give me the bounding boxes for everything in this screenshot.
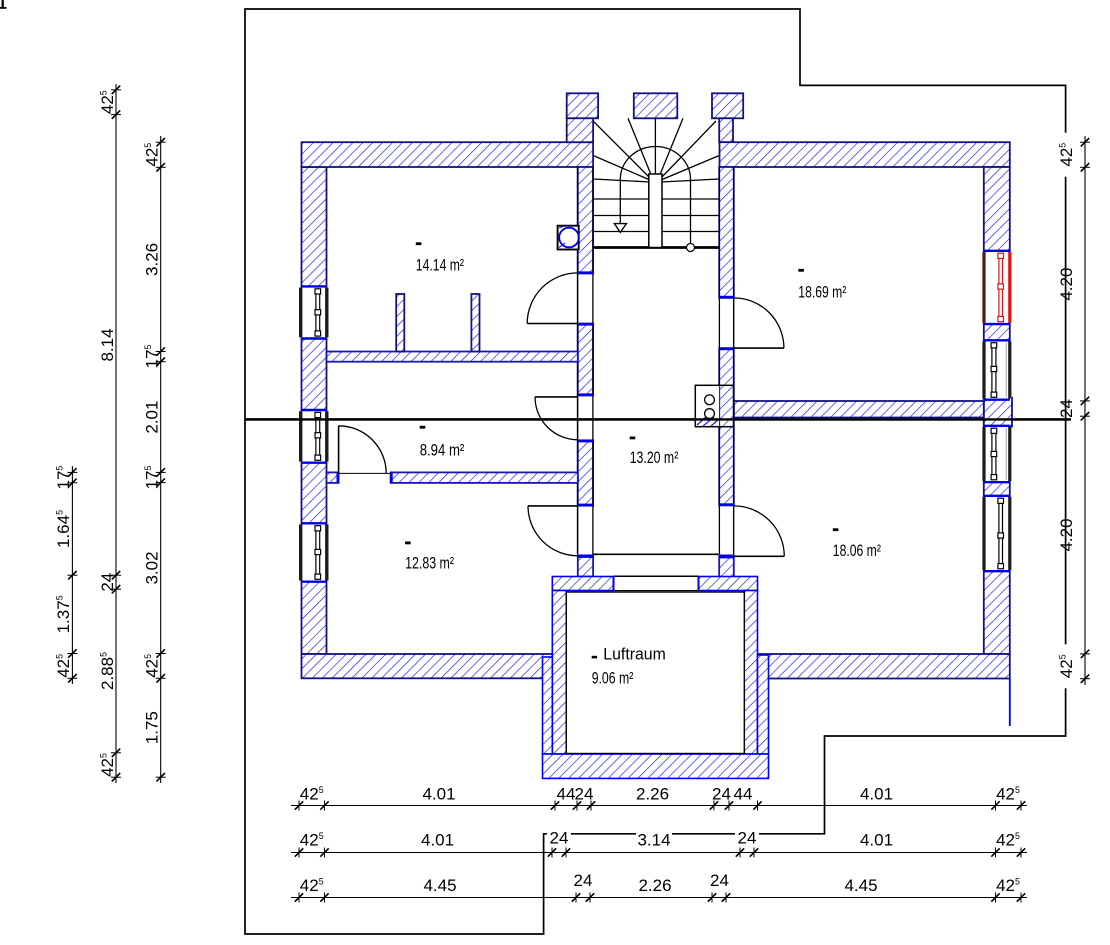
svg-text:4.01: 4.01: [421, 831, 454, 850]
svg-text:Luftraum: Luftraum: [603, 644, 666, 663]
svg-text:1.375: 1.375: [54, 595, 73, 633]
svg-text:24: 24: [574, 871, 593, 890]
svg-text:24: 24: [550, 829, 569, 848]
svg-text:24: 24: [575, 785, 594, 804]
svg-text:8.94 m²: 8.94 m²: [420, 441, 465, 460]
svg-text:2.26: 2.26: [638, 876, 671, 895]
svg-text:4.01: 4.01: [860, 831, 893, 850]
svg-text:24: 24: [1057, 399, 1076, 418]
svg-text:24: 24: [710, 871, 729, 890]
svg-text:24: 24: [712, 785, 731, 804]
svg-text:3.02: 3.02: [143, 551, 162, 584]
svg-text:18.06 m²: 18.06 m²: [833, 541, 881, 560]
svg-text:44: 44: [557, 785, 576, 804]
svg-text:4.20: 4.20: [1057, 268, 1076, 301]
svg-text:4.45: 4.45: [423, 876, 456, 895]
svg-text:3.14: 3.14: [637, 831, 670, 850]
svg-text:3.26: 3.26: [143, 243, 162, 276]
svg-text:2.01: 2.01: [143, 401, 162, 434]
svg-text:4.20: 4.20: [1057, 518, 1076, 551]
svg-text:13.20 m²: 13.20 m²: [630, 448, 679, 467]
svg-text:4.01: 4.01: [422, 785, 455, 804]
svg-text:44: 44: [734, 785, 753, 804]
svg-text:2.885: 2.885: [98, 652, 117, 690]
svg-text:24: 24: [738, 829, 757, 848]
svg-text:14.14 m²: 14.14 m²: [416, 256, 464, 275]
svg-text:2.26: 2.26: [636, 785, 669, 804]
svg-text:1.75: 1.75: [143, 711, 162, 744]
svg-text:24: 24: [98, 573, 117, 592]
svg-text:9.06 m²: 9.06 m²: [592, 668, 634, 687]
svg-text:18.69 m²: 18.69 m²: [798, 283, 846, 302]
svg-text:12.83 m²: 12.83 m²: [405, 554, 454, 573]
svg-text:4.45: 4.45: [844, 876, 877, 895]
svg-text:8.14: 8.14: [98, 328, 117, 361]
svg-text:1.645: 1.645: [54, 510, 73, 548]
svg-text:4.01: 4.01: [860, 785, 893, 804]
